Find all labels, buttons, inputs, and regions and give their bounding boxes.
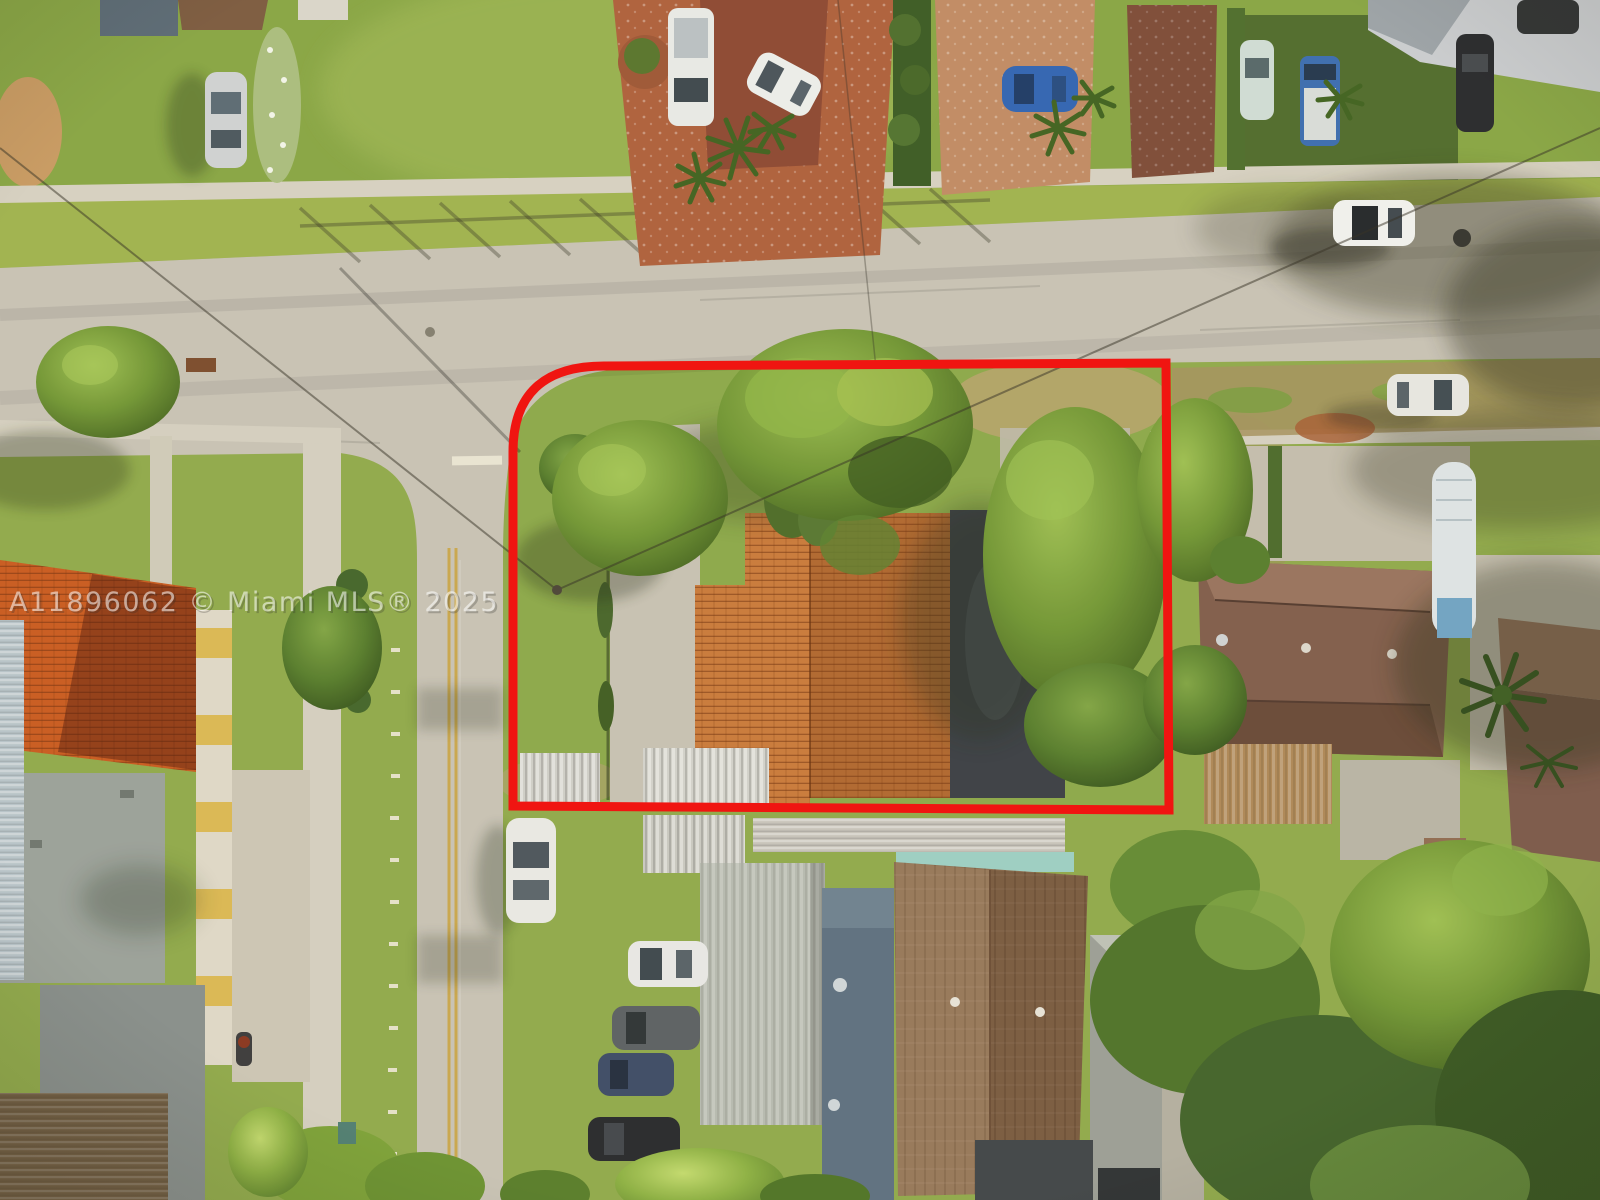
watermark: A11896062 © Miami MLS® 2025 A11896062 © … bbox=[9, 587, 501, 620]
aerial-photo-canvas: A11896062 © Miami MLS® 2025 A11896062 © … bbox=[0, 0, 1600, 1200]
aerial-listing-photo: A11896062 © Miami MLS® 2025 A11896062 © … bbox=[0, 0, 1600, 1200]
watermark-text: A11896062 © Miami MLS® 2025 bbox=[9, 587, 499, 618]
